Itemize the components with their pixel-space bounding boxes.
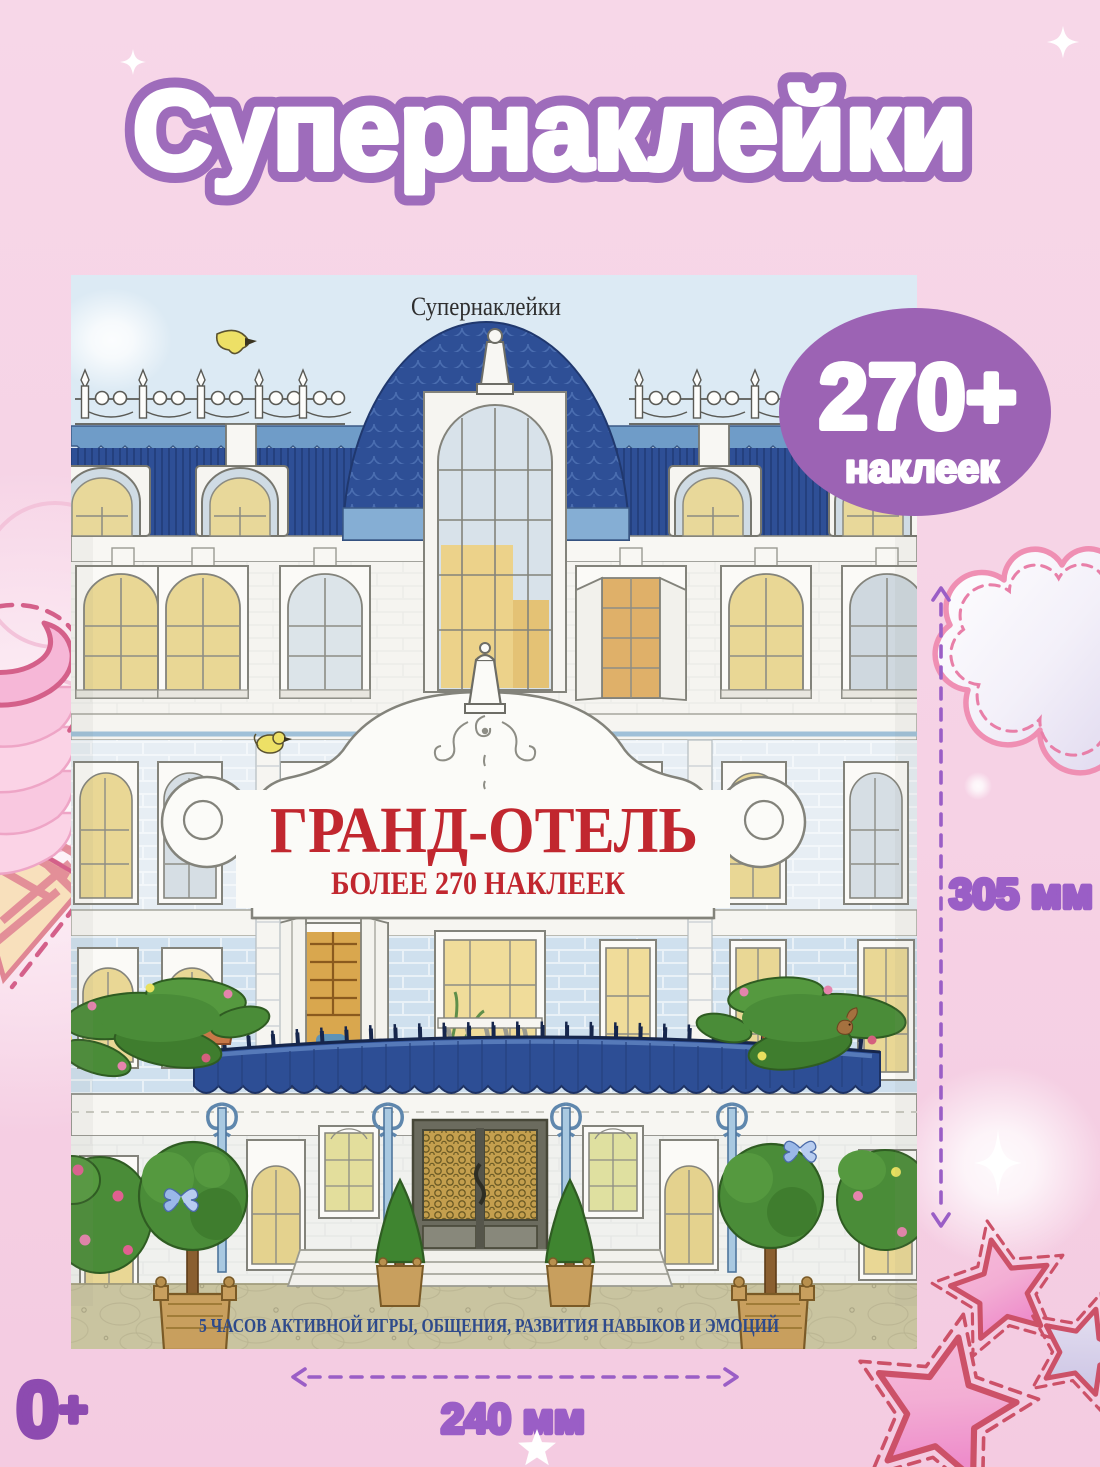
svg-text:Супернаклейки: Супернаклейки [133,68,967,193]
svg-text:240 мм: 240 мм [441,1395,585,1442]
svg-text:305 мм: 305 мм [949,870,1093,917]
svg-text:Супернаклейки: Супернаклейки [411,292,561,321]
svg-text:ГРАНД-ОТЕЛЬ: ГРАНД-ОТЕЛЬ [270,794,698,867]
svg-text:БОЛЕЕ 270 НАКЛЕЕК: БОЛЕЕ 270 НАКЛЕЕК [331,866,625,902]
svg-text:5 ЧАСОВ АКТИВНОЙ ИГРЫ, ОБЩЕНИЯ: 5 ЧАСОВ АКТИВНОЙ ИГРЫ, ОБЩЕНИЯ, РАЗВИТИЯ… [199,1314,779,1337]
svg-text:270+: 270+ [819,346,1017,448]
svg-text:наклеек: наклеек [845,447,1000,491]
